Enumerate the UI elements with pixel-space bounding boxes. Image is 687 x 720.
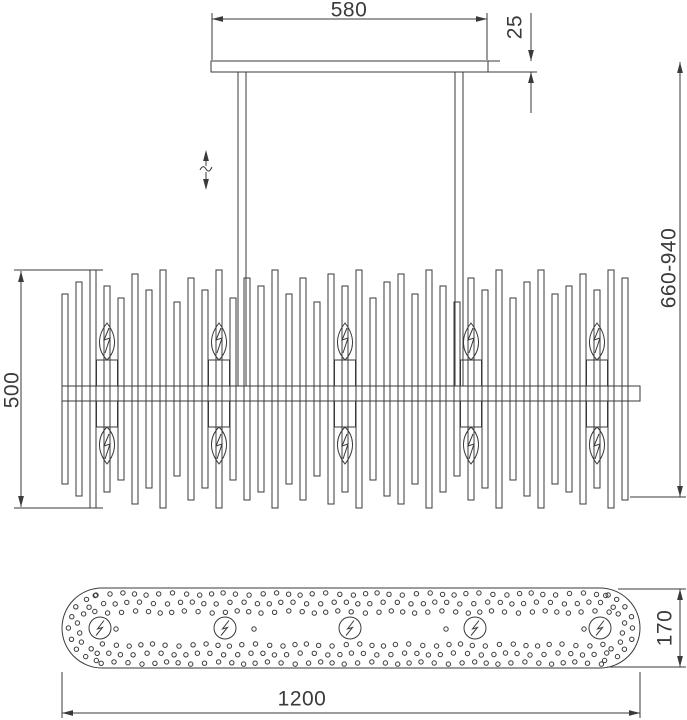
bulb-flame (337, 323, 352, 360)
shade-rod (244, 278, 250, 500)
mounting-hole (252, 627, 256, 631)
mounting-hole (517, 591, 521, 595)
shade-rod (552, 294, 558, 484)
mounting-hole (358, 642, 362, 646)
mounting-hole (312, 651, 316, 655)
shade-rod (524, 282, 530, 496)
mounting-hole (287, 609, 291, 613)
mounting-hole (113, 602, 117, 606)
mounting-hole (409, 602, 413, 606)
mounting-hole (566, 611, 570, 615)
mounting-hole (389, 609, 393, 613)
shade-rod (62, 294, 68, 484)
shade-rod (412, 294, 418, 484)
mounting-hole (99, 661, 103, 665)
mounting-hole (521, 601, 525, 605)
height-adjust-symbol (200, 150, 212, 190)
mounting-hole (432, 661, 436, 665)
mounting-hole (342, 662, 346, 666)
dimension-canopy-width: 580 (212, 0, 487, 60)
mounting-hole (240, 643, 244, 647)
mounting-hole (95, 651, 99, 655)
dimension-arrow (629, 710, 640, 716)
mounting-hole (370, 660, 374, 664)
mounting-hole (163, 643, 167, 647)
mounting-hole (223, 610, 227, 614)
mounting-hole (75, 621, 79, 625)
mounting-hole (196, 609, 200, 613)
mounting-hole (414, 592, 418, 596)
dimension-arrow (528, 72, 534, 83)
mounting-hole (119, 610, 123, 614)
mounting-hole (620, 631, 624, 635)
mounting-hole (594, 592, 598, 596)
mounting-hole (454, 610, 458, 614)
mounting-hole (560, 642, 564, 646)
shade-rod (300, 278, 306, 500)
bulb-holder (97, 360, 118, 386)
mounting-hole (567, 591, 571, 595)
mounting-hole (284, 653, 288, 657)
mounting-hole (159, 651, 163, 655)
center-bar (62, 386, 640, 401)
mounting-hole (465, 651, 469, 655)
shade-rod (174, 302, 180, 476)
mounting-hole (69, 637, 73, 641)
bulb-filament (594, 328, 600, 353)
mounting-hole (368, 602, 372, 606)
mounting-hole (140, 662, 144, 666)
shade-rod (258, 286, 264, 492)
mounting-hole (585, 661, 589, 665)
mounting-hole (548, 600, 552, 604)
shade-rod (188, 278, 194, 500)
mounting-hole (336, 609, 340, 613)
mounting-hole (66, 626, 70, 630)
shade-rod (216, 270, 222, 508)
mounting-hole (178, 600, 182, 604)
bulb-filament (216, 434, 222, 459)
suspension-rod (238, 72, 246, 386)
mounting-hole (473, 660, 477, 664)
shade-rod (440, 286, 446, 492)
mounting-hole (176, 661, 180, 665)
shade-rod (608, 270, 614, 508)
mounting-hole (298, 593, 302, 597)
mounting-hole (486, 600, 490, 604)
shade-rod (286, 294, 292, 484)
mounting-hole (569, 651, 573, 655)
mounting-hole (319, 602, 323, 606)
dimension-arrow (476, 16, 487, 22)
shade-rod (426, 270, 432, 508)
mounting-hole (630, 626, 634, 630)
bulb-flame (211, 323, 226, 360)
socket-bolt-icon (221, 621, 229, 636)
mounting-hole (543, 609, 547, 613)
mounting-hole (630, 637, 634, 641)
dimension-arrow (203, 179, 209, 190)
mounting-hole (338, 652, 342, 656)
mounting-hole (304, 602, 308, 606)
dimension-arrow (203, 150, 209, 161)
mounting-hole (611, 605, 615, 609)
mounting-hole (556, 651, 560, 655)
mounting-hole (306, 661, 310, 665)
mounting-hole (623, 605, 627, 609)
shade-rod (398, 274, 404, 504)
mounting-hole (125, 600, 129, 604)
mounting-hole (202, 661, 206, 665)
mounting-hole (466, 611, 470, 615)
mounting-hole (580, 653, 584, 657)
mounting-hole (164, 660, 168, 664)
mounting-hole (261, 592, 265, 596)
mounting-hole (235, 609, 239, 613)
mounting-hole (349, 651, 353, 655)
mounting-hole (575, 601, 579, 605)
mounting-hole (208, 651, 212, 655)
shade-rod (230, 298, 236, 480)
mounting-hole (607, 610, 611, 614)
mounting-hole (440, 609, 444, 613)
mounting-hole (381, 644, 385, 648)
mounting-hole (131, 653, 135, 657)
mounting-hole (209, 592, 213, 596)
mounting-hole (509, 661, 513, 665)
shade-rod (384, 282, 390, 496)
mounting-hole (268, 643, 272, 647)
dimension-base-width: 1200 (62, 672, 640, 718)
mounting-hole (629, 615, 633, 619)
mounting-hole (267, 602, 271, 606)
mounting-hole (145, 651, 149, 655)
socket-bolt-icon (96, 621, 104, 636)
mounting-hole (573, 660, 577, 664)
mounting-hole (89, 647, 93, 651)
mounting-hole (286, 592, 290, 596)
mounting-hole (511, 642, 515, 646)
mounting-hole (300, 610, 304, 614)
mounting-hole (281, 644, 285, 648)
mounting-hole (505, 593, 509, 597)
mounting-hole (515, 651, 519, 655)
mounting-hole (581, 591, 585, 595)
dimension-arrow (18, 496, 24, 507)
mounting-hole (478, 610, 482, 614)
mounting-hole (496, 662, 500, 666)
mounting-hole (497, 642, 501, 646)
mounting-hole (227, 644, 231, 648)
dimension-arrow (677, 62, 683, 73)
mounting-hole (615, 597, 619, 601)
mounting-hole (84, 597, 88, 601)
mounting-hole (228, 600, 232, 604)
mounting-hole (121, 591, 125, 595)
mounting-hole (438, 652, 442, 656)
mounting-hole (446, 662, 450, 666)
mounting-hole (247, 610, 251, 614)
mounting-hole (601, 642, 605, 646)
mounting-hole (291, 600, 295, 604)
bulb-holder (461, 360, 482, 386)
mounting-hole (158, 611, 162, 615)
dimension-arrow (677, 656, 683, 667)
mounting-hole (74, 605, 78, 609)
mounting-hole (415, 651, 419, 655)
mounting-hole (74, 647, 78, 651)
mounting-hole (133, 609, 137, 613)
mounting-hole (210, 611, 214, 615)
mounting-hole (189, 662, 193, 666)
mounting-hole (230, 661, 234, 665)
mounting-hole (261, 651, 265, 655)
mounting-hole (458, 602, 462, 606)
bulb-flame (589, 323, 604, 360)
shade-rod (622, 278, 628, 500)
dim-label-canopy-thickness: 25 (504, 15, 527, 39)
mounting-hole (236, 653, 240, 657)
mounting-hole (445, 600, 449, 604)
mounting-hole (190, 600, 194, 604)
mounting-hole (555, 610, 559, 614)
shade-rod (356, 270, 362, 508)
mounting-hole (216, 643, 220, 647)
mounting-hole (502, 610, 506, 614)
mounting-hole (458, 642, 462, 646)
shade-rod (468, 278, 474, 500)
bulb-holder (335, 401, 356, 427)
mounting-hole (349, 610, 353, 614)
bulb-holder (587, 401, 608, 427)
mounting-hole (272, 653, 276, 657)
mounting-hole (101, 601, 105, 605)
mounting-hole (107, 651, 111, 655)
bulb-holder (461, 401, 482, 427)
socket-bolt-icon (346, 621, 354, 636)
mounting-hole (510, 602, 514, 606)
mounting-hole (483, 644, 487, 648)
mounting-hole (137, 600, 141, 604)
socket-bolt-icon (471, 621, 479, 636)
mounting-hole (114, 643, 118, 647)
mounting-hole (479, 653, 483, 657)
shade-rod (538, 270, 544, 508)
mounting-hole (177, 644, 181, 648)
mounting-hole (105, 611, 109, 615)
bulb-filament (342, 328, 348, 353)
mounting-hole (588, 644, 592, 648)
mounting-hole (293, 662, 297, 666)
mounting-hole (253, 661, 257, 665)
mounting-hole (428, 591, 432, 595)
dimension-canopy-thickness: 25 (488, 13, 537, 113)
mounting-hole (170, 591, 174, 595)
shade-rod (146, 290, 152, 488)
mounting-hole (355, 661, 359, 665)
dim-label-shade-height: 500 (1, 372, 24, 409)
mounting-hole (579, 610, 583, 614)
mounting-hole (324, 591, 328, 595)
mounting-hole (165, 602, 169, 606)
mounting-hole (255, 602, 259, 606)
mounting-hole (592, 652, 596, 656)
mounting-hole (139, 643, 143, 647)
bulb-holder (335, 360, 356, 386)
mounting-hole (534, 600, 538, 604)
mounting-hole (375, 653, 379, 657)
mounting-hole (204, 642, 208, 646)
mounting-hole (407, 642, 411, 646)
mounting-hole (616, 612, 620, 616)
mounting-hole (153, 661, 157, 665)
mounting-hole (472, 602, 476, 606)
dim-label-base-width: 1200 (278, 688, 327, 711)
mounting-hole (451, 651, 455, 655)
mounting-hole (561, 661, 565, 665)
mounting-hole (144, 593, 148, 597)
bulb-filament (594, 434, 600, 459)
mounting-hole (464, 591, 468, 595)
mounting-hole (549, 662, 553, 666)
mounting-hole (562, 602, 566, 606)
shade-rod (580, 274, 586, 504)
mounting-hole (78, 631, 82, 635)
mounting-hole (489, 609, 493, 613)
mounting-hole (70, 615, 74, 619)
shade-rod (496, 270, 502, 508)
break-symbol (200, 167, 212, 171)
shade-rod (76, 282, 82, 496)
mounting-hole (396, 662, 400, 666)
mounting-hole (146, 609, 150, 613)
mounting-hole (191, 643, 195, 647)
shade-rod (482, 290, 488, 488)
shade-rod (118, 298, 124, 480)
mounting-hole (618, 640, 622, 644)
mounting-hole (535, 644, 539, 648)
mounting-hole (609, 647, 613, 651)
bulb-filament (468, 328, 474, 353)
mounting-hole (426, 610, 430, 614)
mounting-hole (233, 592, 237, 596)
shade-rod (314, 302, 320, 476)
mounting-hole (470, 643, 474, 647)
mounting-hole (407, 661, 411, 665)
shade-rod (160, 270, 166, 508)
dimension-shade-height: 500 (1, 270, 104, 508)
mounting-hole (316, 643, 320, 647)
mounting-hole (326, 653, 330, 657)
mounting-hole (377, 610, 381, 614)
shade-rod (510, 298, 516, 480)
shade-side-view (62, 270, 640, 508)
mounting-hole (452, 593, 456, 597)
shade-rod (90, 270, 96, 508)
shade-rod (370, 298, 376, 480)
mounting-hole (582, 627, 586, 631)
mounting-hole (221, 653, 225, 657)
mounting-hole (265, 660, 269, 664)
dim-label-base-height: 170 (654, 610, 677, 647)
mounting-hole (87, 605, 91, 609)
mounting-hole (249, 651, 253, 655)
mounting-hole (593, 609, 597, 613)
mounting-hole (530, 610, 534, 614)
mounting-hole (112, 660, 116, 664)
mounting-hole (221, 591, 225, 595)
dim-label-canopy-width: 580 (331, 0, 368, 22)
bulb-holder (209, 401, 230, 427)
mounting-hole (426, 653, 430, 657)
candle-bulbs (97, 323, 608, 464)
mounting-hole (241, 662, 245, 666)
mounting-hole (127, 644, 131, 648)
mounting-hole (477, 591, 481, 595)
mounting-hole (622, 621, 626, 625)
mounting-hole (587, 600, 591, 604)
mounting-hole (151, 601, 155, 605)
mounting-hole (383, 661, 387, 665)
dimension-arrow (677, 589, 683, 600)
mounting-hole (375, 591, 379, 595)
shade-rod (272, 270, 278, 508)
mounting-hole (118, 653, 122, 657)
mounting-hole (598, 600, 602, 604)
mounting-hole (170, 610, 174, 614)
suspension-rod (455, 72, 463, 386)
mounting-hole (503, 651, 507, 655)
mounting-hole (274, 591, 278, 595)
mounting-hole (293, 642, 297, 646)
mounting-hole (419, 660, 423, 664)
mounting-hole (202, 602, 206, 606)
mounting-hole (542, 652, 546, 656)
mounting-hole (547, 642, 551, 646)
dimension-arrow (528, 50, 534, 61)
mounting-hole (184, 592, 188, 596)
shade-rod (566, 286, 572, 492)
dimension-arrow (677, 486, 683, 497)
mounting-hole (214, 602, 218, 606)
mounting-hole (605, 651, 609, 655)
mounting-hole (622, 647, 626, 651)
mounting-hole (79, 640, 83, 644)
mounting-hole (304, 642, 308, 646)
mounting-hole (330, 644, 334, 648)
bulb-flame (99, 323, 114, 360)
mounting-hole (421, 602, 425, 606)
bulb-filament (104, 328, 110, 353)
mounting-hole (498, 600, 502, 604)
mounting-hole (132, 592, 136, 596)
dimension-arrow (62, 710, 73, 716)
mounting-hole (421, 643, 425, 647)
mounting-hole (157, 592, 161, 596)
mounting-hole (524, 643, 528, 647)
mounting-hole (351, 593, 355, 597)
mounting-hole (615, 654, 619, 658)
mounting-hole (356, 602, 360, 606)
mounting-hole (100, 642, 104, 646)
mounting-hole (444, 627, 448, 631)
mounting-hole (344, 600, 348, 604)
mounting-hole (247, 593, 251, 597)
dim-label-overall-height: 660-940 (658, 228, 681, 309)
mounting-hole (389, 652, 393, 656)
mounting-hole (81, 612, 85, 616)
mounting-hole (198, 593, 202, 597)
